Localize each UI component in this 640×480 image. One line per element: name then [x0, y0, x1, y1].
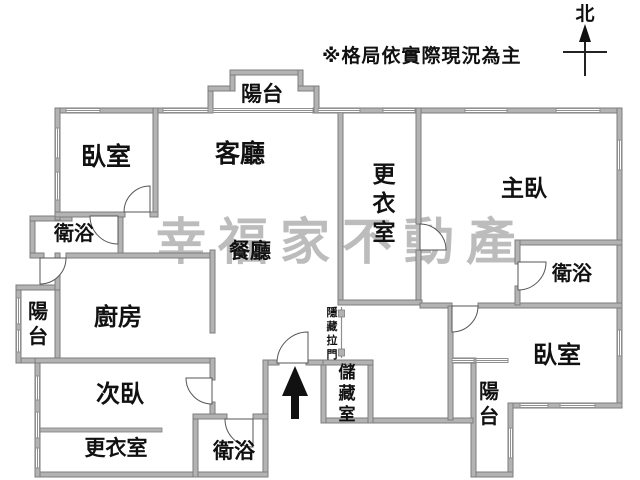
room-label-hidden-sliding-door-char-0: 隱	[327, 305, 338, 319]
room-label-balcony-bottom-right-char-1: 台	[479, 404, 499, 428]
window	[520, 404, 548, 408]
door-entry	[277, 332, 308, 363]
window	[56, 172, 60, 200]
window	[36, 448, 40, 468]
window	[556, 109, 600, 113]
room-label-storage-char-1: 藏	[339, 384, 356, 404]
balcony-sliding-door	[476, 359, 508, 363]
room-label-living-room: 客廳	[215, 139, 265, 168]
room-label-bedroom-bottom-right: 臥室	[533, 341, 581, 369]
room-label-storage-char-0: 儲	[339, 362, 356, 383]
window	[213, 109, 313, 113]
room-label-storage-char-2: 室	[339, 404, 356, 425]
window	[163, 109, 208, 113]
window	[509, 428, 513, 458]
window	[66, 109, 100, 113]
room-label-walkin-closet-main-char-0: 更	[373, 162, 397, 188]
window	[17, 330, 21, 352]
door-bath-top-left	[90, 216, 118, 244]
room-label-bedroom-second: 次臥	[96, 380, 145, 408]
room-label-bath-top-left: 衛浴	[53, 221, 95, 245]
room-label-hidden-sliding-door-char-1: 藏	[327, 319, 338, 333]
window	[618, 330, 622, 356]
door-bedroom-top-left	[124, 186, 150, 212]
floor-plan: 幸福家不動產	[0, 0, 640, 480]
room-label-hidden-sliding-door-char-3: 門	[327, 348, 338, 361]
layout-disclaimer-note: ※格局依實際現況為主	[322, 44, 521, 67]
window	[618, 140, 622, 170]
room-label-balcony-left-char-1: 台	[28, 324, 48, 348]
room-label-master-bedroom: 主臥	[501, 176, 548, 202]
room-label-dining-room: 餐廳	[229, 239, 271, 263]
room-label-balcony-top: 陽台	[241, 82, 283, 106]
window	[465, 109, 507, 113]
window	[36, 412, 40, 438]
room-label-hidden-sliding-door-char-2: 拉	[327, 333, 338, 347]
room-label-kitchen: 廚房	[94, 303, 142, 331]
window	[318, 109, 360, 113]
window	[452, 359, 474, 363]
window	[383, 109, 415, 113]
entrance-arrow	[282, 366, 308, 419]
compass: 北	[563, 3, 607, 76]
room-label-balcony-left-char-0: 陽	[28, 299, 48, 323]
compass-arrowhead	[579, 24, 591, 42]
door-kitchen	[40, 258, 66, 284]
floor-plan-page: 幸福家不動產	[0, 0, 640, 480]
window	[17, 298, 21, 324]
room-label-bath-bottom: 衛浴	[212, 439, 256, 463]
compass-north-label: 北	[575, 3, 594, 25]
window	[560, 404, 595, 408]
door-bedroom-bottom-right	[452, 306, 478, 332]
window	[36, 376, 40, 400]
room-label-walkin-closet-second: 更衣室	[85, 436, 148, 460]
door-bedroom-second	[186, 378, 212, 404]
room-label-walkin-closet-main-char-1: 衣	[373, 190, 396, 217]
door-bath-right	[518, 262, 546, 290]
room-label-bedroom-top-left: 臥室	[81, 142, 131, 171]
window	[56, 128, 60, 158]
room-label-bath-right: 衛浴	[551, 261, 593, 285]
hidden-sliding-door-symbol	[339, 307, 345, 358]
room-label-walkin-closet-main-char-2: 室	[373, 219, 396, 246]
room-label-balcony-bottom-right-char-0: 陽	[479, 379, 499, 403]
